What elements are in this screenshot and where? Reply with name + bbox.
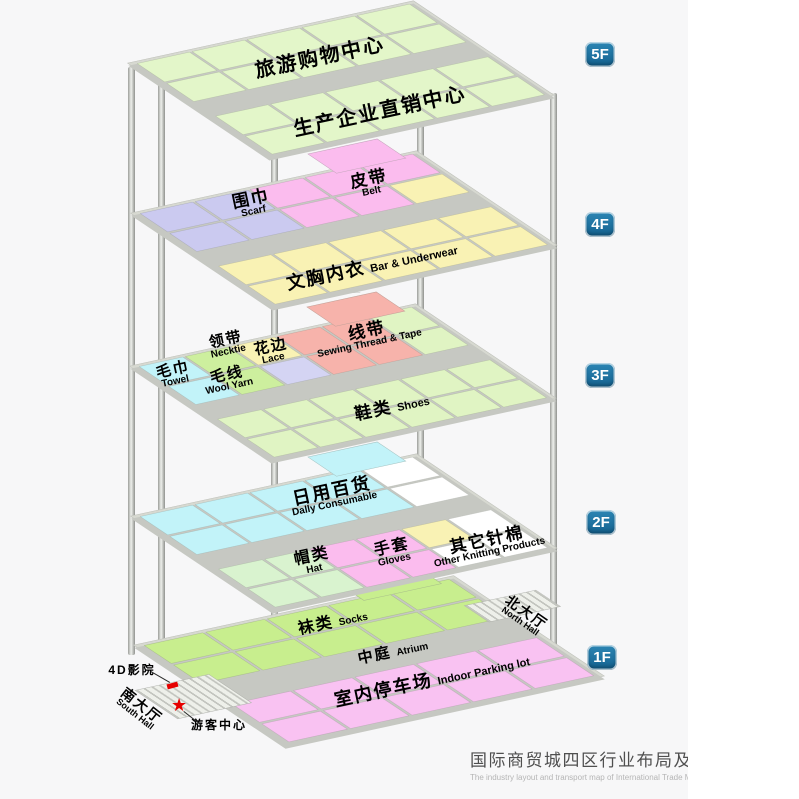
- badge-5f: 5F: [585, 42, 615, 67]
- floor-5f: [127, 1, 555, 158]
- badge-4f: 4F: [585, 212, 615, 237]
- pillar: [550, 93, 557, 676]
- badge-3f: 3F: [585, 363, 615, 388]
- badge-1f: 1F: [587, 645, 617, 670]
- caption-subtitle: The industry layout and transport map of…: [470, 773, 688, 782]
- map-caption: 国际商贸城四区行业布局及交通图 The industry layout and …: [470, 746, 688, 782]
- industry-layout-map: 旅游购物中心生产企业直销中心围巾Scarf皮带Belt文胸内衣Bar & Und…: [0, 0, 799, 799]
- cinema-leader-line: [151, 671, 171, 683]
- badge-2f: 2F: [586, 510, 616, 535]
- pillar: [128, 67, 135, 655]
- figure-area: 旅游购物中心生产企业直销中心围巾Scarf皮带Belt文胸内衣Bar & Und…: [0, 0, 688, 799]
- label-cinema-4d: 4D影院: [108, 664, 155, 676]
- floor-4f: [130, 151, 558, 308]
- caption-title: 国际商贸城四区行业布局及交通图: [470, 746, 688, 771]
